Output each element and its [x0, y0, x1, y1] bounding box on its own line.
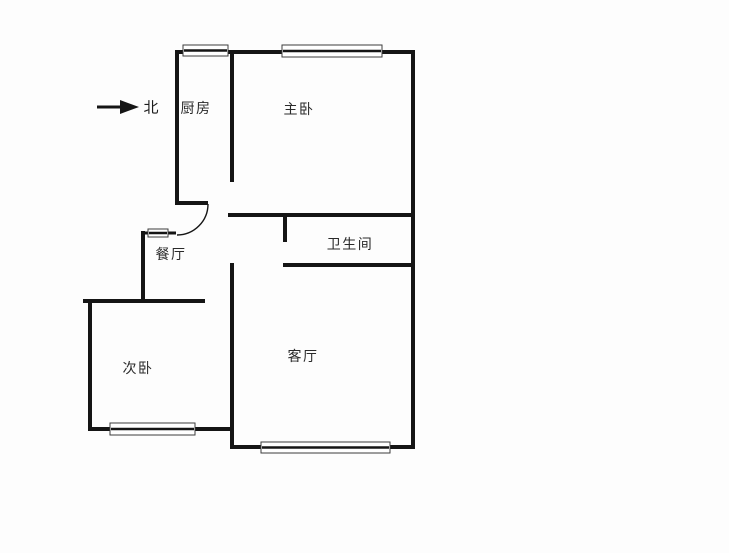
room-label-bathroom: 卫生间	[327, 234, 374, 254]
room-label-kitchen: 厨房	[181, 98, 212, 118]
room-label-dining-room: 餐厅	[156, 244, 187, 264]
room-label-second-bedroom: 次卧	[123, 358, 154, 378]
door-arc	[177, 204, 208, 235]
north-arrow-head-icon	[120, 100, 139, 114]
north-label: 北	[143, 97, 158, 118]
room-label-living-room: 客厅	[288, 346, 319, 366]
floorplan: 北 厨房 主卧 卫生间 餐厅 次卧 客厅	[0, 0, 729, 553]
floorplan-svg	[0, 0, 729, 553]
room-label-master-bedroom: 主卧	[284, 99, 315, 119]
